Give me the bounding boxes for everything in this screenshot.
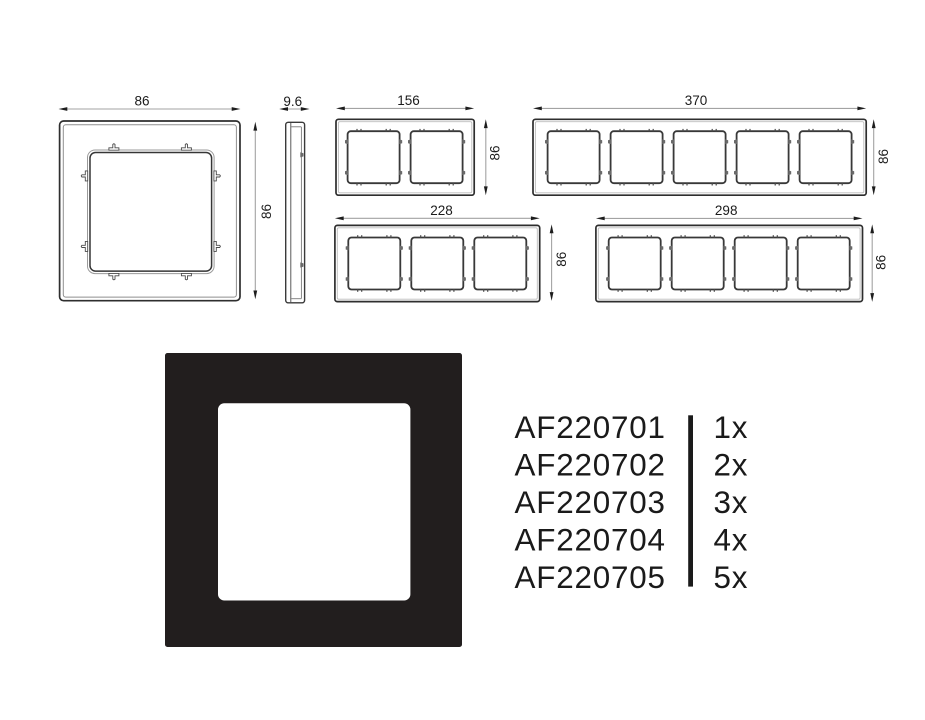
svg-text:9.6: 9.6 xyxy=(283,94,302,109)
svg-text:86: 86 xyxy=(259,204,274,219)
svg-text:86: 86 xyxy=(488,145,503,160)
svg-text:86: 86 xyxy=(554,252,569,267)
svg-text:2x: 2x xyxy=(714,448,749,483)
svg-text:AF220704: AF220704 xyxy=(515,522,666,557)
svg-text:3x: 3x xyxy=(714,485,749,520)
svg-text:5x: 5x xyxy=(714,560,749,595)
svg-text:AF220701: AF220701 xyxy=(515,410,666,445)
svg-text:AF220702: AF220702 xyxy=(515,448,666,483)
svg-text:370: 370 xyxy=(685,93,708,108)
svg-text:228: 228 xyxy=(430,203,453,218)
svg-text:4x: 4x xyxy=(714,522,749,557)
svg-text:298: 298 xyxy=(715,203,738,218)
svg-text:156: 156 xyxy=(397,93,420,108)
svg-text:86: 86 xyxy=(874,255,889,270)
svg-text:AF220705: AF220705 xyxy=(515,560,666,595)
svg-text:86: 86 xyxy=(134,94,149,109)
svg-text:1x: 1x xyxy=(714,410,749,445)
svg-text:86: 86 xyxy=(876,149,891,164)
svg-text:AF220703: AF220703 xyxy=(515,485,666,520)
